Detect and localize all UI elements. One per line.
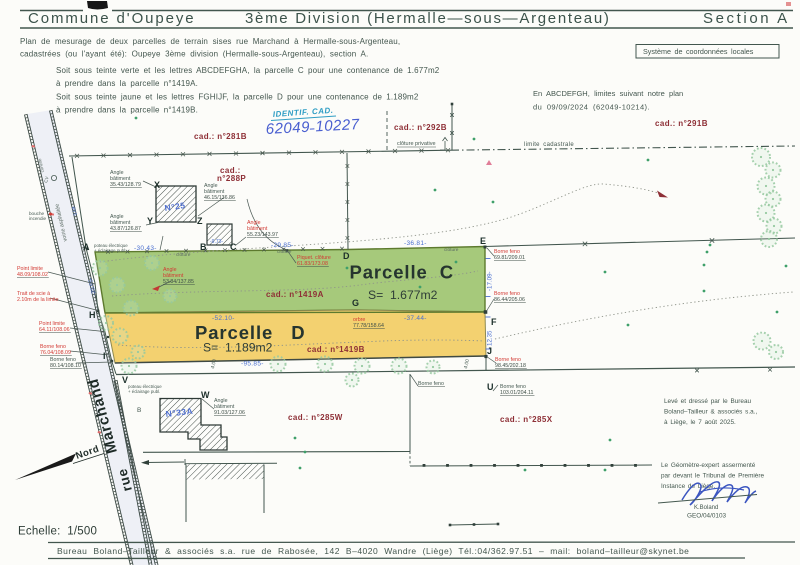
svg-text:X: X: [154, 180, 160, 190]
svg-text:Commune d'Oupeye: Commune d'Oupeye: [28, 10, 196, 27]
svg-text:Y: Y: [147, 216, 153, 226]
svg-text:77.78/158.64: 77.78/158.64: [353, 323, 384, 329]
svg-text:cad.: n°1419B: cad.: n°1419B: [307, 345, 365, 354]
svg-text:-52.10-: -52.10-: [212, 315, 235, 322]
svg-text:cad.: n°281B: cad.: n°281B: [194, 132, 247, 141]
svg-text:cad.: n°1419A: cad.: n°1419A: [266, 290, 324, 299]
svg-text:Borne feno: Borne feno: [50, 357, 76, 363]
svg-text:Le Géomètre-expert assermenté: Le Géomètre-expert assermenté: [661, 462, 756, 469]
svg-text:clôture: clôture: [277, 249, 292, 255]
svg-text:A: A: [83, 242, 90, 252]
svg-text:orbre: orbre: [353, 317, 365, 323]
svg-text:à Liège, le 7 août 2025.: à Liège, le 7 août 2025.: [664, 419, 736, 426]
svg-text:Plan de mesurage de deux parce: Plan de mesurage de deux parcelles de te…: [20, 37, 400, 46]
svg-text:V: V: [122, 375, 128, 385]
svg-text:limite cadastrale: limite cadastrale: [524, 142, 574, 148]
svg-text:-17.09-: -17.09-: [487, 271, 494, 291]
svg-text:48.09/108.02: 48.09/108.02: [17, 272, 48, 278]
svg-text:cad.: n°285W: cad.: n°285W: [288, 413, 343, 422]
svg-text:-9.73-: -9.73-: [210, 239, 223, 245]
svg-text:K.Boland: K.Boland: [694, 505, 718, 511]
svg-text:61.83/173.08: 61.83/173.08: [297, 261, 328, 267]
svg-text:Parcelle C: Parcelle C: [350, 262, 455, 283]
svg-text:Borne feno: Borne feno: [40, 344, 66, 350]
svg-text:98.45/202.18: 98.45/202.18: [495, 363, 526, 369]
svg-text:B: B: [200, 242, 207, 252]
svg-text:69.81/209.01: 69.81/209.01: [494, 255, 525, 261]
svg-text:Piquet. clôture: Piquet. clôture: [297, 255, 331, 261]
svg-text:GEO/04/0103: GEO/04/0103: [687, 513, 727, 520]
svg-text:clôture: clôture: [444, 247, 459, 253]
svg-text:par devant le Tribunal de Prem: par devant le Tribunal de Première: [661, 473, 764, 480]
svg-text:Echelle: 1/500: Echelle: 1/500: [18, 526, 97, 538]
svg-text:Borne feno: Borne feno: [418, 381, 444, 387]
svg-text:D: D: [343, 251, 350, 261]
svg-text:U: U: [487, 382, 494, 392]
svg-text:Boland–Tailleur & associés s.a: Boland–Tailleur & associés s.a.,: [664, 409, 757, 416]
svg-text:Levé et dressé par le Bureau: Levé et dressé par le Bureau: [664, 398, 752, 405]
svg-text:-37.44-: -37.44-: [404, 315, 427, 322]
svg-text:cad.: n°292B: cad.: n°292B: [394, 123, 447, 132]
svg-text:I: I: [103, 351, 106, 361]
svg-text:E: E: [480, 236, 486, 246]
svg-text:103.01/204.11: 103.01/204.11: [500, 390, 534, 396]
svg-text:Soit sous teinte jaune et les: Soit sous teinte jaune et les lettres FG…: [56, 93, 419, 102]
svg-text:Borne feno: Borne feno: [494, 249, 520, 255]
svg-text:64.11/108.06: 64.11/108.06: [39, 327, 70, 333]
svg-text:Point limite: Point limite: [17, 266, 43, 272]
svg-text:Borne feno: Borne feno: [500, 384, 526, 390]
svg-text:35.43/128.79: 35.43/128.79: [110, 182, 141, 188]
svg-text:W: W: [201, 390, 210, 400]
svg-text:cad.: n°291B: cad.: n°291B: [655, 119, 708, 128]
svg-text:-36.81-: -36.81-: [404, 240, 427, 247]
svg-text:du 09/09/2024 (62049-10214).: du 09/09/2024 (62049-10214).: [533, 103, 650, 112]
svg-text:2.10m de la limite: 2.10m de la limite: [17, 297, 59, 303]
svg-text:F: F: [491, 317, 497, 327]
svg-text:Système de coordonnées locales: Système de coordonnées locales: [643, 47, 754, 56]
svg-text:86.44/205.06: 86.44/205.06: [494, 297, 525, 303]
svg-text:cadastrées (ou l'ayant été): O: cadastrées (ou l'ayant été): Oupeye 3ème…: [20, 50, 368, 59]
svg-text:+ éclairage publ.: + éclairage publ.: [94, 248, 126, 253]
svg-text:+ éclairage publ.: + éclairage publ.: [128, 389, 160, 394]
svg-text:J: J: [487, 346, 492, 356]
svg-text:-95.85-: -95.85-: [241, 361, 264, 368]
svg-text:3ème Division (Hermalle—sous—A: 3ème Division (Hermalle—sous—Argenteau): [245, 10, 611, 27]
svg-text:Borne feno: Borne feno: [495, 357, 521, 363]
svg-text:46.15/136.86: 46.15/136.86: [204, 195, 235, 201]
svg-text:91.03/127.06: 91.03/127.06: [214, 410, 245, 416]
svg-text:à prendre dans la parcelle n°1: à prendre dans la parcelle n°1419B.: [56, 106, 198, 115]
svg-text:incendie: incendie: [29, 216, 47, 221]
svg-text:Point limite: Point limite: [39, 321, 65, 327]
svg-text:76.04/108.09: 76.04/108.09: [40, 350, 71, 356]
svg-text:n°288P: n°288P: [217, 174, 246, 183]
svg-text:12.35: 12.35: [487, 330, 494, 346]
svg-text:S= 1.189m2: S= 1.189m2: [203, 341, 273, 355]
svg-text:S= 1.677m2: S= 1.677m2: [368, 288, 438, 302]
svg-text:G: G: [352, 298, 359, 308]
svg-text:cad.: n°285X: cad.: n°285X: [500, 415, 553, 424]
svg-text:Borne feno: Borne feno: [494, 291, 520, 297]
svg-text:C: C: [230, 242, 237, 252]
svg-text:Z: Z: [197, 216, 203, 226]
svg-text:à prendre dans la parcelle n°1: à prendre dans la parcelle n°1419A.: [56, 79, 198, 88]
svg-text:clôture: clôture: [176, 252, 191, 258]
svg-text:43.87/126.87: 43.87/126.87: [110, 226, 141, 232]
svg-text:clôture privative: clôture privative: [397, 141, 436, 147]
svg-text:B: B: [137, 407, 141, 414]
svg-text:En ABCDEFGH, limites suivant n: En ABCDEFGH, limites suivant notre plan: [533, 89, 683, 98]
svg-text:Section A: Section A: [703, 10, 790, 27]
svg-text:Trait de scie à: Trait de scie à: [17, 291, 50, 297]
svg-text:53.84/137.85: 53.84/137.85: [163, 279, 194, 285]
svg-text:-29.85-: -29.85-: [271, 242, 294, 249]
svg-text:80.14/108.10: 80.14/108.10: [50, 363, 81, 369]
svg-text:Bureau Boland–Tailleur & assoc: Bureau Boland–Tailleur & associés s.a. r…: [57, 546, 689, 556]
svg-text:H: H: [89, 310, 96, 320]
svg-text:Soit sous teinte verte et les: Soit sous teinte verte et les lettres AB…: [56, 66, 440, 75]
svg-text:-30.43-: -30.43-: [134, 245, 157, 252]
svg-text:55.23/143.97: 55.23/143.97: [247, 232, 278, 238]
